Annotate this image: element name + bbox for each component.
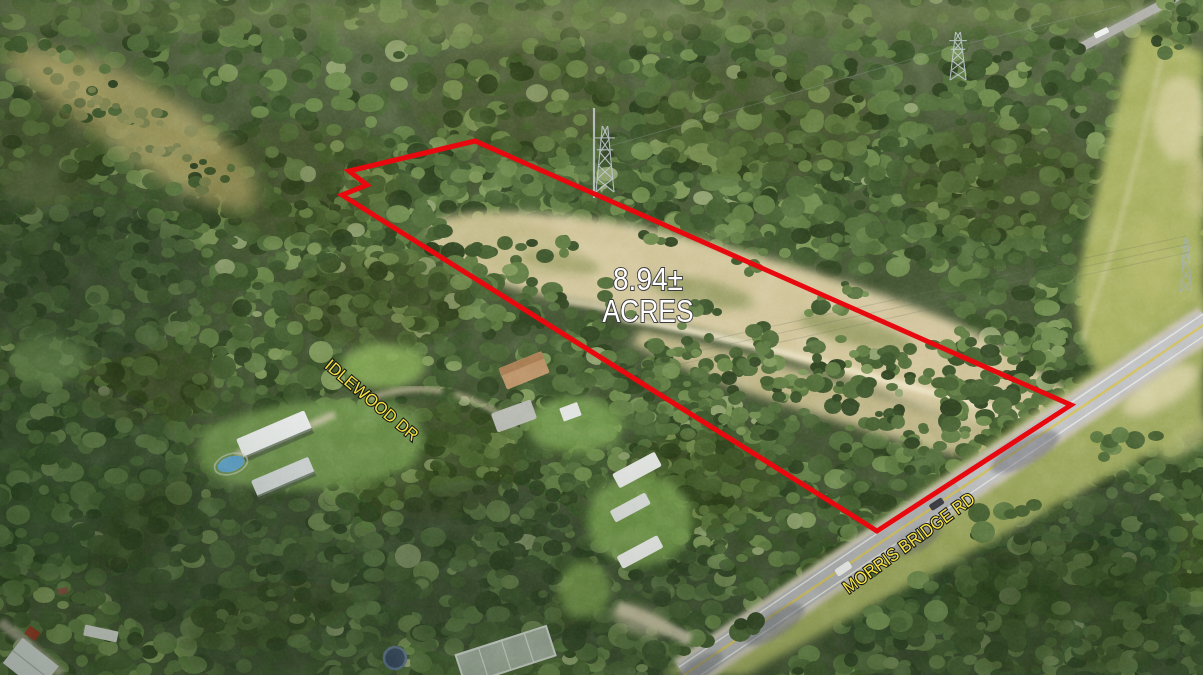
svg-text:8.94±: 8.94± bbox=[613, 262, 683, 297]
svg-text:ACRES: ACRES bbox=[603, 294, 694, 329]
